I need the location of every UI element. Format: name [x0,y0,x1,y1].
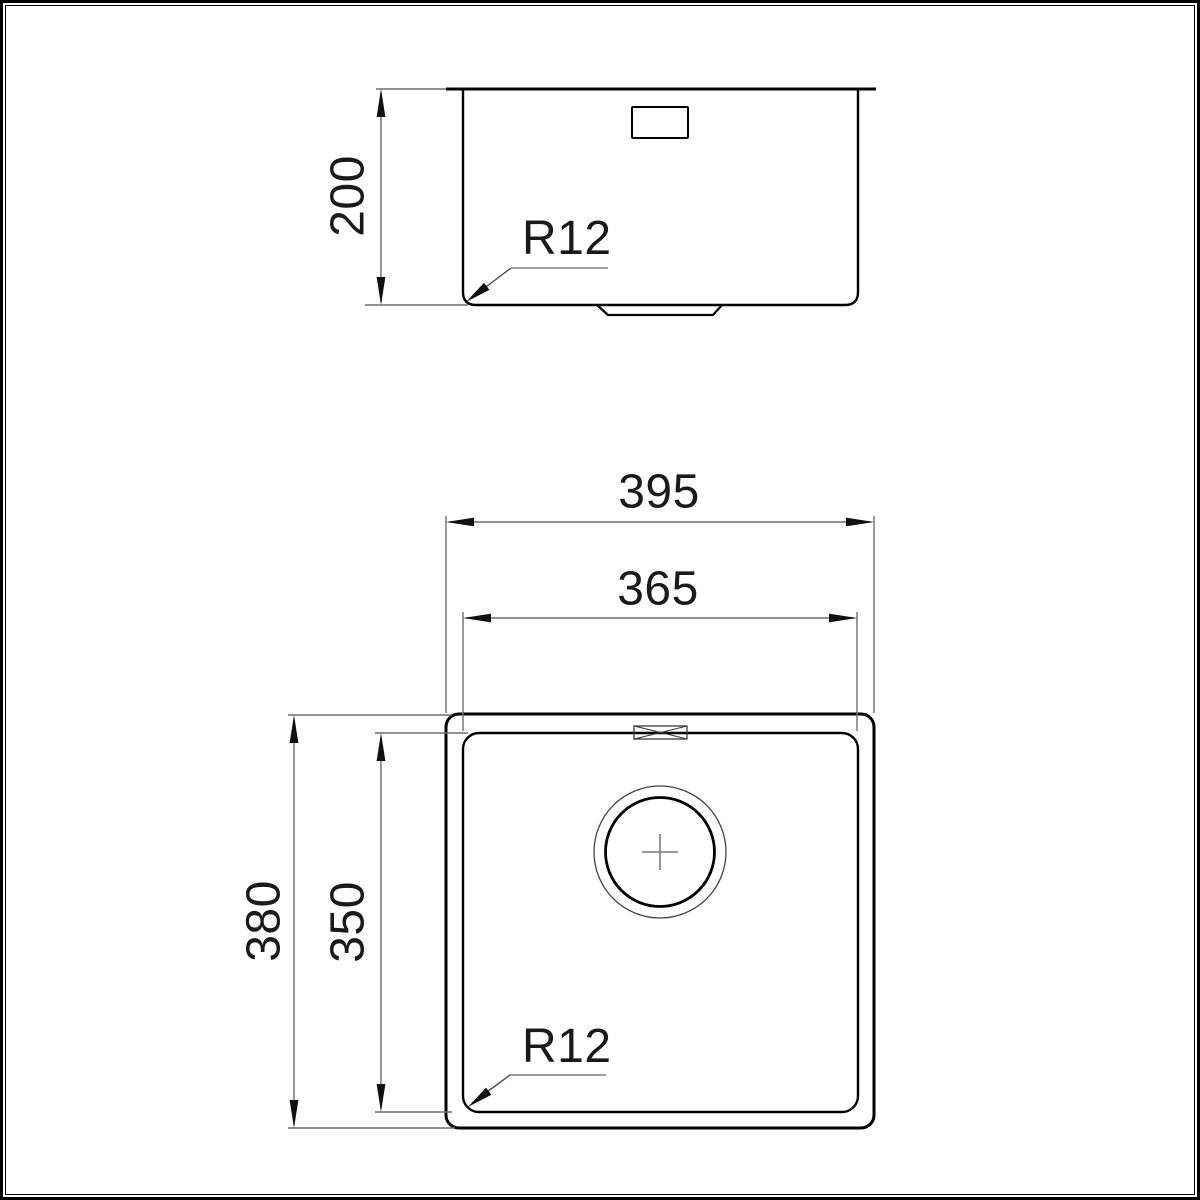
corner-radius-callout-plan: R12 [468,1020,612,1107]
arrowhead [463,614,491,623]
height-dimension: 200 [322,89,469,305]
radius-label-side: R12 [522,212,612,265]
inner-depth-label: 350 [322,881,375,963]
arrowhead [829,614,857,623]
plan-view: 395 365 380 [238,466,875,1129]
sink-bowl-section-outline [463,89,858,305]
overflow-hole [632,107,688,138]
inner-width-dimension: 365 [463,563,857,732]
sink-outer-rim [446,714,874,1128]
drawing-sheet: 200 R12 [0,0,1200,1200]
drain-outlet [597,305,722,315]
arrowhead [377,277,386,305]
arrowhead [846,518,874,527]
inner-width-label: 365 [617,563,699,616]
arrowhead [290,1100,299,1128]
corner-radius-callout-side: R12 [466,212,612,302]
arrowhead [377,1084,386,1112]
outer-depth-label: 380 [238,880,291,962]
leader-arrowhead [466,283,489,302]
arrowhead [377,89,386,117]
arrowhead [377,733,386,761]
leader-arrowhead [468,1088,491,1107]
side-section-view: 200 R12 [322,89,877,315]
arrowhead [290,715,299,743]
drain [594,786,726,918]
height-dimension-label: 200 [322,155,375,237]
outer-width-label: 395 [618,466,700,519]
sheet-border-inner [6,6,1195,1195]
arrowhead [446,518,474,527]
sink-technical-drawing: 200 R12 [0,0,1200,1200]
sheet-border-outer [2,2,1199,1199]
radius-label-plan: R12 [522,1020,612,1073]
